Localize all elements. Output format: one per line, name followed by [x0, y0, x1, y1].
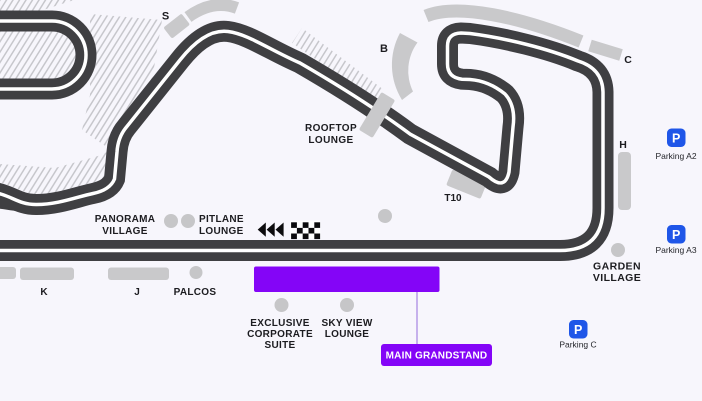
svg-text:J: J: [134, 287, 140, 298]
svg-text:CORPORATE: CORPORATE: [247, 329, 313, 340]
svg-text:ROOFTOP: ROOFTOP: [305, 123, 357, 134]
svg-text:LOUNGE: LOUNGE: [325, 329, 370, 340]
svg-text:SUITE: SUITE: [265, 340, 296, 351]
svg-text:VILLAGE: VILLAGE: [102, 226, 147, 237]
svg-text:GARDEN: GARDEN: [593, 261, 641, 273]
svg-text:K: K: [40, 287, 48, 298]
svg-text:Parking A3: Parking A3: [655, 245, 696, 255]
svg-text:PITLANE: PITLANE: [199, 214, 244, 225]
svg-text:MAIN GRANDSTAND: MAIN GRANDSTAND: [386, 351, 488, 362]
svg-text:VILLAGE: VILLAGE: [593, 272, 641, 284]
svg-text:B: B: [380, 43, 388, 55]
svg-text:P: P: [574, 323, 582, 337]
svg-text:PANORAMA: PANORAMA: [95, 214, 156, 225]
svg-text:P: P: [672, 228, 680, 242]
svg-text:C: C: [624, 54, 632, 66]
svg-text:Parking A2: Parking A2: [655, 151, 696, 161]
svg-text:P: P: [672, 132, 680, 146]
svg-text:T10: T10: [444, 193, 462, 204]
svg-text:EXCLUSIVE: EXCLUSIVE: [250, 318, 309, 329]
svg-text:LOUNGE: LOUNGE: [199, 226, 244, 237]
svg-text:S: S: [162, 11, 169, 23]
svg-text:SKY VIEW: SKY VIEW: [321, 318, 372, 329]
svg-text:PALCOS: PALCOS: [174, 287, 217, 298]
svg-text:Parking C: Parking C: [559, 340, 596, 350]
svg-text:LOUNGE: LOUNGE: [308, 135, 353, 146]
svg-text:H: H: [619, 139, 627, 151]
